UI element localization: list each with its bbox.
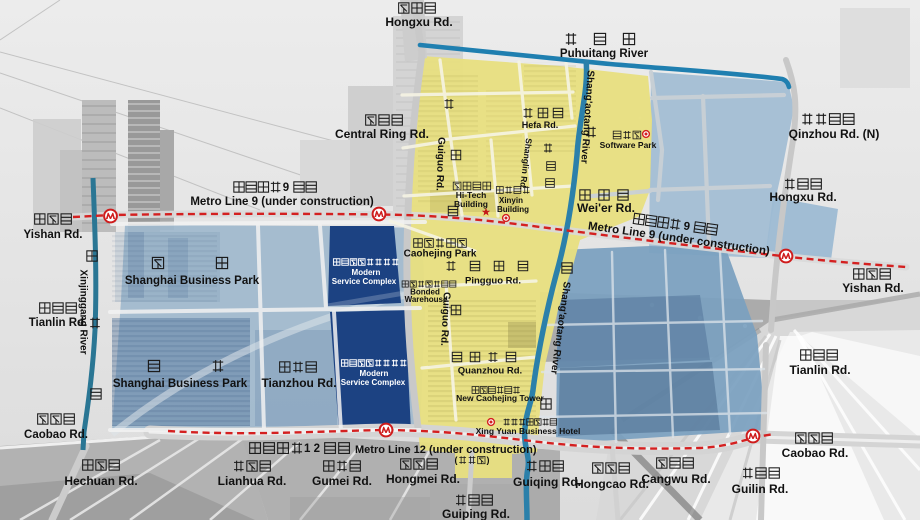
svg-text:Guiping Rd.: Guiping Rd. <box>442 507 510 520</box>
svg-text:Caohejing Park: Caohejing Park <box>404 249 477 260</box>
svg-text:Guiqing Rd.: Guiqing Rd. <box>513 475 581 489</box>
svg-text:Metro Line 12 (under construct: Metro Line 12 (under construction) <box>355 444 537 456</box>
svg-text:Hefa Rd.: Hefa Rd. <box>522 120 559 130</box>
svg-text:Xinyin: Xinyin <box>499 196 523 205</box>
svg-text:Tianlin Rd.: Tianlin Rd. <box>29 317 88 329</box>
svg-text:Xinjinggang River: Xinjinggang River <box>78 269 89 354</box>
svg-text:Pingguo Rd.: Pingguo Rd. <box>465 275 521 286</box>
svg-text:Shanghai Business Park: Shanghai Business Park <box>125 275 260 287</box>
svg-text:Hongxu Rd.: Hongxu Rd. <box>385 15 452 29</box>
svg-text:Caobao Rd.: Caobao Rd. <box>24 429 88 441</box>
svg-text:1 2: 1 2 <box>304 443 320 455</box>
svg-text:Yishan Rd.: Yishan Rd. <box>24 229 83 241</box>
svg-text:Cangwu Rd.: Cangwu Rd. <box>641 472 710 486</box>
svg-text:Guiguo Rd.: Guiguo Rd. <box>434 137 447 191</box>
svg-text:New Caohejing Tower: New Caohejing Tower <box>456 393 544 403</box>
svg-text:Modern: Modern <box>360 369 389 378</box>
svg-text:Caobao Rd.: Caobao Rd. <box>782 446 849 460</box>
svg-text:Central Ring Rd.: Central Ring Rd. <box>335 127 429 141</box>
svg-text:Shanghai Business Park: Shanghai Business Park <box>113 378 248 390</box>
svg-text:Service Complex: Service Complex <box>341 378 406 387</box>
svg-text:Guilin Rd.: Guilin Rd. <box>732 482 789 496</box>
svg-text:Qinzhou Rd. (N): Qinzhou Rd. (N) <box>789 127 880 141</box>
svg-text:Building: Building <box>497 205 529 214</box>
svg-text:9: 9 <box>283 182 289 194</box>
svg-text:Quanzhou Rd.: Quanzhou Rd. <box>458 365 522 376</box>
svg-text:Tianlin Rd.: Tianlin Rd. <box>789 363 850 377</box>
svg-text:Gumei Rd.: Gumei Rd. <box>312 474 372 488</box>
svg-text:Wei'er Rd.: Wei'er Rd. <box>577 201 635 215</box>
svg-text:Hongcao Rd.: Hongcao Rd. <box>575 477 649 491</box>
svg-text:Software Park: Software Park <box>600 140 657 150</box>
svg-text:): ) <box>487 455 490 465</box>
svg-text:Puhuitang River: Puhuitang River <box>560 48 649 60</box>
svg-text:Yishan Rd.: Yishan Rd. <box>842 281 904 295</box>
svg-text:Hongxu Rd.: Hongxu Rd. <box>769 190 836 204</box>
svg-text:Xing Yuan Business Hotel: Xing Yuan Business Hotel <box>476 426 581 436</box>
svg-text:Lianhua Rd.: Lianhua Rd. <box>218 474 287 488</box>
svg-text:Service Complex: Service Complex <box>332 277 397 286</box>
svg-text:Building: Building <box>454 199 488 209</box>
svg-text:Hechuan Rd.: Hechuan Rd. <box>64 474 137 488</box>
svg-text:Hongmei Rd.: Hongmei Rd. <box>386 472 460 486</box>
svg-text:Modern: Modern <box>352 268 381 277</box>
svg-text:(: ( <box>455 455 458 465</box>
svg-text:Metro Line 9 (under constructi: Metro Line 9 (under construction) <box>190 196 374 208</box>
svg-text:Tianzhou Rd.: Tianzhou Rd. <box>261 376 336 390</box>
